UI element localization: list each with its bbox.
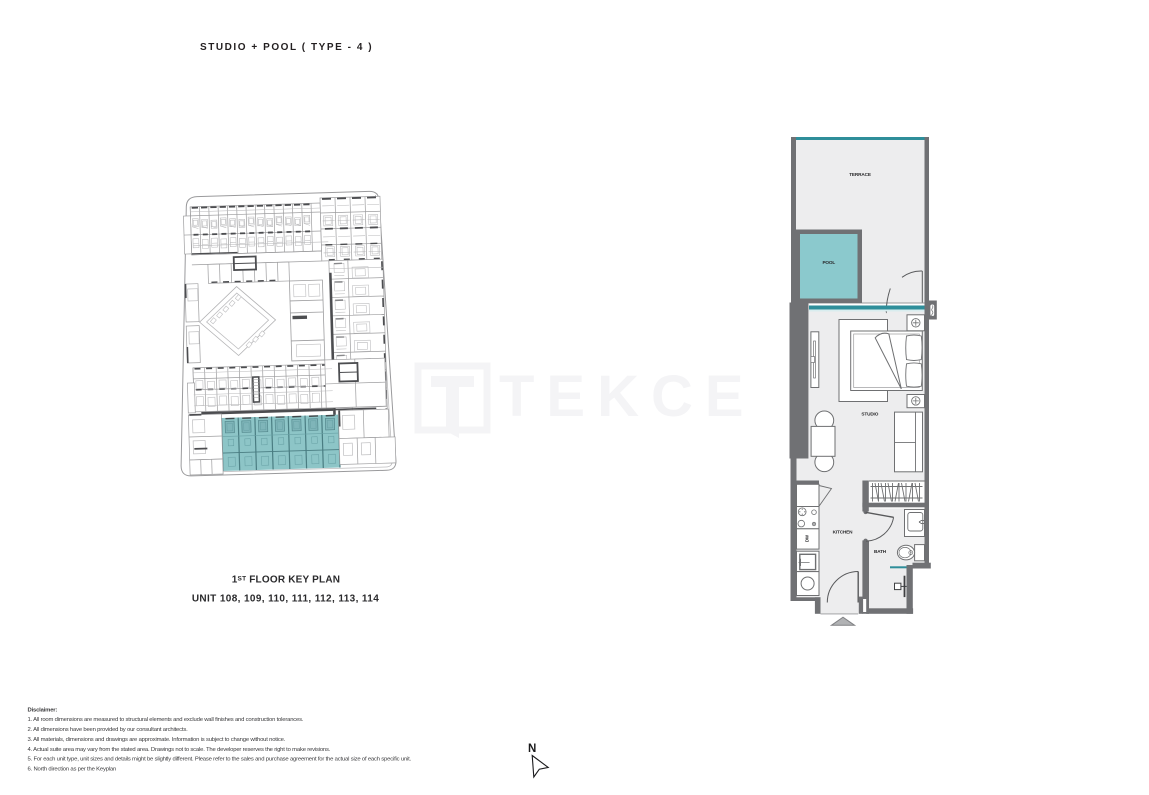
svg-text:POOL: POOL xyxy=(822,260,835,265)
svg-text:KITCHEN: KITCHEN xyxy=(833,529,854,534)
svg-text:1ST FLOOR KEY PLAN: 1ST FLOOR KEY PLAN xyxy=(232,575,340,586)
svg-text:STUDIO: STUDIO xyxy=(861,411,878,416)
svg-text:4. Actual suite area may vary: 4. Actual suite area may vary from the s… xyxy=(28,747,331,753)
svg-text:DW: DW xyxy=(805,534,810,542)
svg-text:BATH: BATH xyxy=(874,549,887,554)
svg-text:TEKCE: TEKCE xyxy=(499,364,756,429)
svg-text:UNIT 108, 109, 110, 111, 112,: UNIT 108, 109, 110, 111, 112, 113, 114 xyxy=(192,594,379,605)
svg-text:6. North direction as per the: 6. North direction as per the Keyplan xyxy=(28,767,117,773)
svg-text:3. All materials, dimensions a: 3. All materials, dimensions and drawing… xyxy=(28,737,286,743)
svg-text:N: N xyxy=(528,743,536,755)
svg-text:Disclaimer:: Disclaimer: xyxy=(28,707,58,713)
svg-text:TERRACE: TERRACE xyxy=(849,172,871,177)
svg-text:2. All dimensions have been pr: 2. All dimensions have been provided by … xyxy=(28,727,189,733)
svg-text:5. For each unit type, unit si: 5. For each unit type, unit sizes and de… xyxy=(28,757,412,763)
svg-text:STUDIO + POOL ( TYPE - 4 ): STUDIO + POOL ( TYPE - 4 ) xyxy=(200,42,373,53)
svg-text:1. All room dimensions are mea: 1. All room dimensions are measured to s… xyxy=(28,717,304,723)
